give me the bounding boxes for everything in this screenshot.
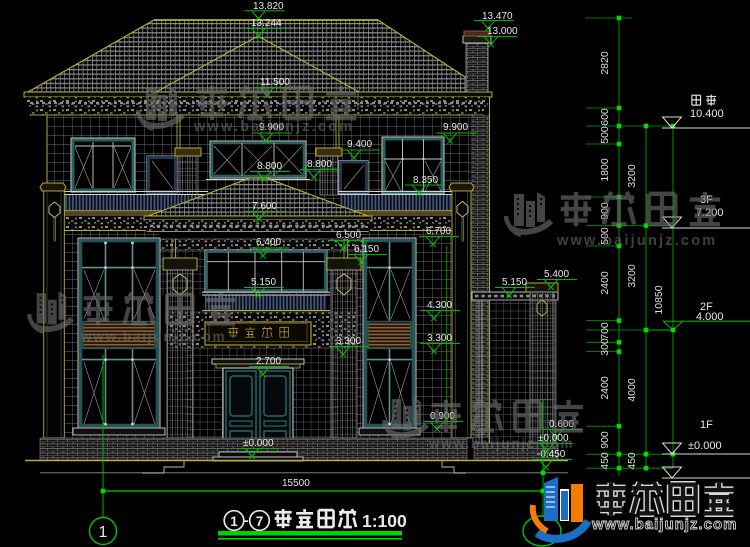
svg-text:5.400: 5.400	[544, 269, 569, 280]
svg-text:8.800: 8.800	[307, 159, 332, 170]
svg-text:6.150: 6.150	[354, 244, 379, 255]
svg-text:2820: 2820	[599, 51, 611, 75]
svg-text:700: 700	[599, 322, 611, 340]
svg-text:2400: 2400	[599, 376, 611, 400]
svg-text:15500: 15500	[282, 478, 310, 489]
svg-text:2.700: 2.700	[256, 356, 281, 367]
svg-text:3200: 3200	[626, 164, 638, 188]
svg-text:9.900: 9.900	[443, 122, 468, 133]
svg-text:www.baijunjz.com: www.baijunjz.com	[193, 119, 354, 135]
svg-text:600: 600	[599, 108, 611, 126]
svg-text:±0.000: ±0.000	[688, 440, 722, 452]
svg-text:5.150: 5.150	[502, 277, 527, 288]
svg-text:13.000: 13.000	[487, 26, 518, 37]
svg-text:8.350: 8.350	[413, 175, 438, 186]
svg-text:6.500: 6.500	[336, 230, 361, 241]
svg-text:13.244: 13.244	[251, 18, 282, 29]
svg-text:6.700: 6.700	[426, 226, 451, 237]
svg-text:6.400: 6.400	[256, 237, 281, 248]
svg-text:www.baijunjz.com: www.baijunjz.com	[428, 436, 574, 451]
svg-text:www.baijunjz.com: www.baijunjz.com	[80, 329, 226, 344]
svg-text:3.300: 3.300	[336, 336, 361, 347]
svg-text:3200: 3200	[626, 264, 638, 288]
svg-text:450: 450	[599, 452, 611, 470]
svg-text:1F: 1F	[700, 419, 713, 431]
svg-text:7: 7	[256, 514, 264, 529]
svg-text:4.000: 4.000	[696, 311, 724, 323]
svg-text:1: 1	[99, 524, 108, 541]
svg-text:10850: 10850	[653, 285, 665, 314]
svg-text:8.800: 8.800	[257, 161, 282, 172]
svg-text:2400: 2400	[599, 271, 611, 295]
svg-text:4000: 4000	[626, 378, 638, 402]
svg-text:www.baijunjz.com: www.baijunjz.com	[556, 233, 717, 249]
svg-text:1: 1	[230, 514, 238, 529]
svg-text:300: 300	[599, 338, 611, 356]
svg-text:www.baijunjz.com: www.baijunjz.com	[591, 516, 737, 533]
svg-text:500: 500	[599, 126, 611, 144]
svg-text:1800: 1800	[599, 158, 611, 182]
svg-text:450: 450	[626, 452, 638, 470]
svg-text:10.400: 10.400	[690, 108, 724, 120]
svg-text:5.150: 5.150	[251, 277, 276, 288]
svg-text:9.400: 9.400	[347, 139, 372, 150]
svg-text:4.300: 4.300	[427, 300, 452, 311]
svg-text:1:100: 1:100	[362, 511, 407, 531]
svg-text:-: -	[244, 512, 249, 528]
svg-text:7.600: 7.600	[252, 201, 277, 212]
svg-text:900: 900	[599, 431, 611, 449]
svg-text:±0.000: ±0.000	[243, 438, 274, 449]
svg-text:3.300: 3.300	[427, 333, 452, 344]
